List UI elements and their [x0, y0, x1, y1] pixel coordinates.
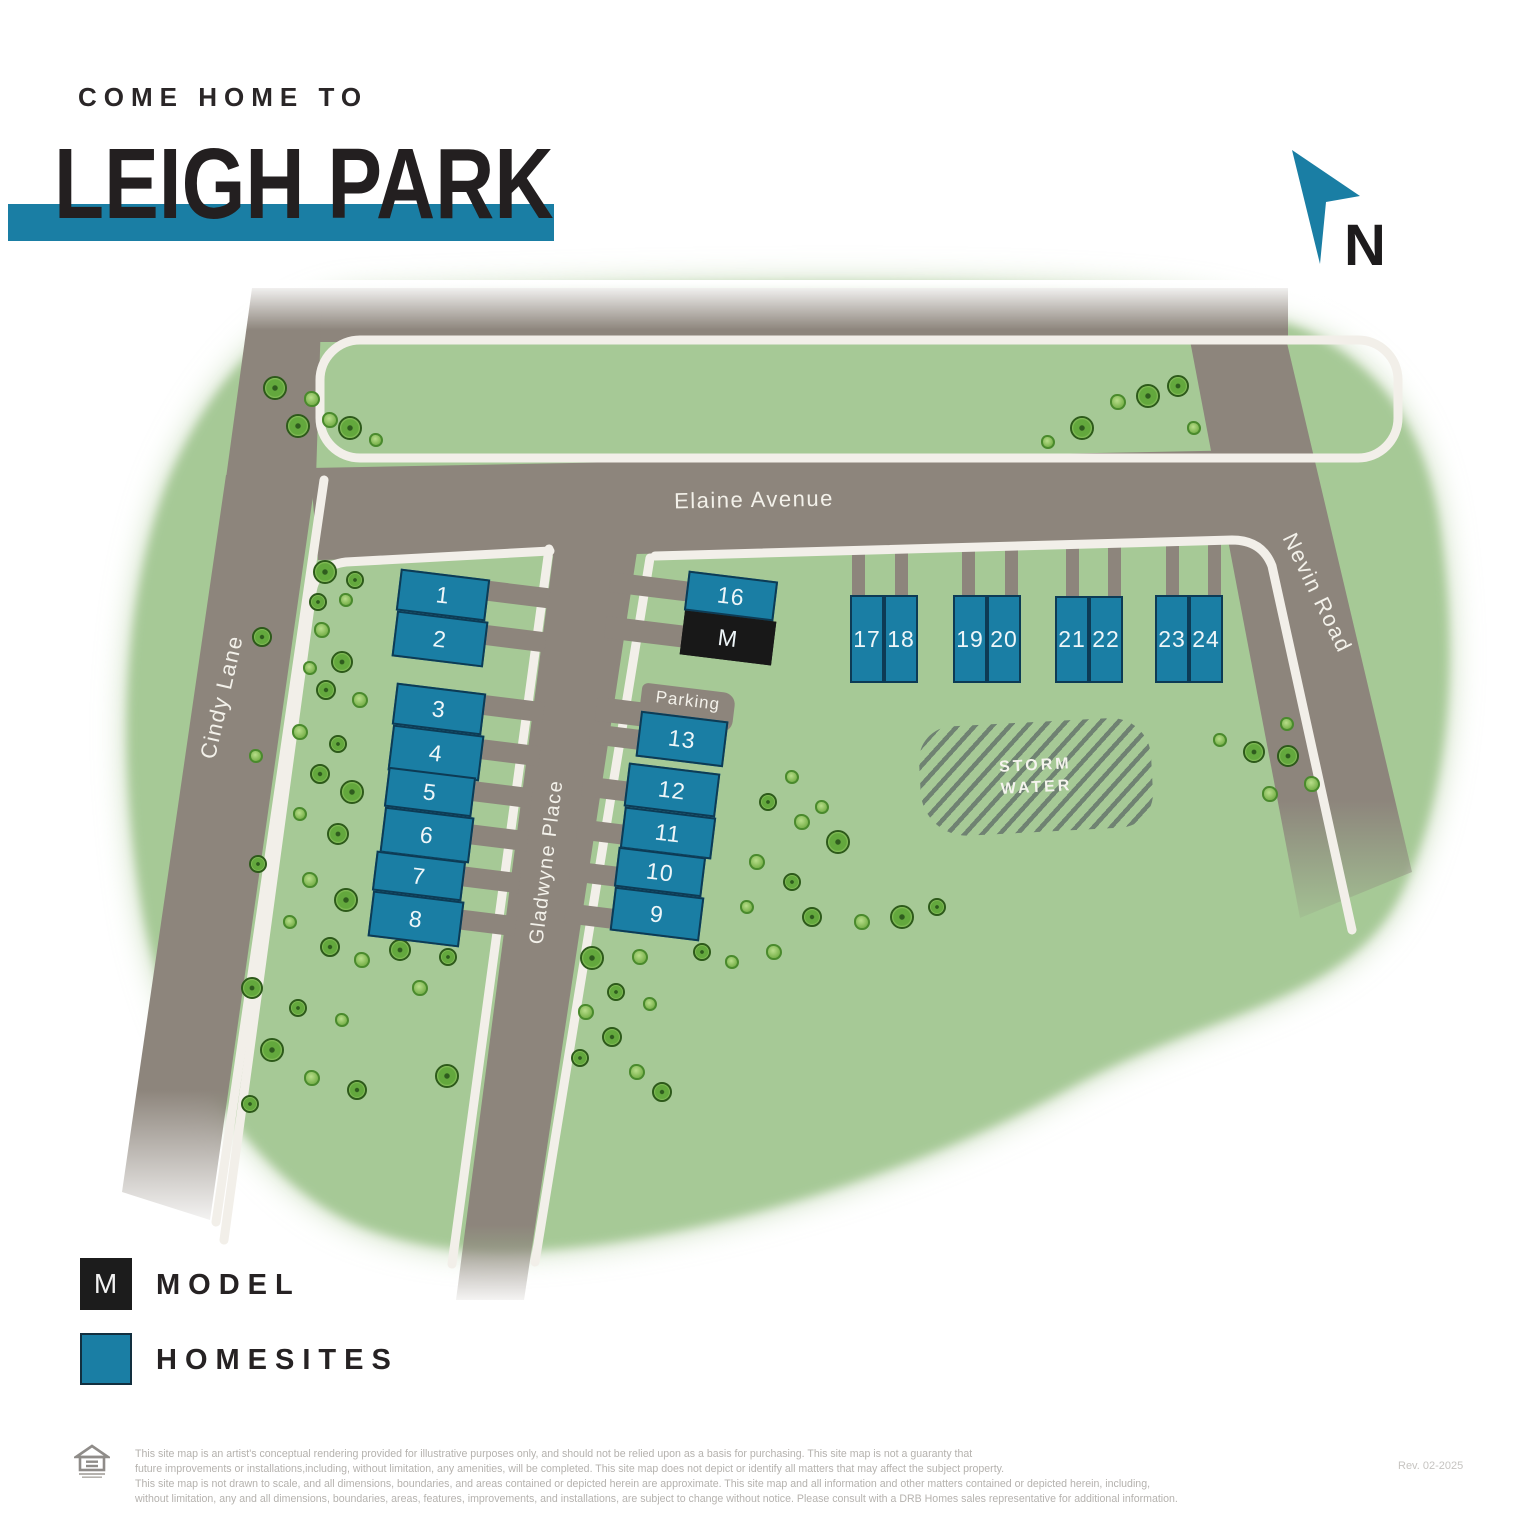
bush-icon [335, 1013, 349, 1027]
bush-icon [766, 944, 782, 960]
tree-icon [693, 943, 711, 961]
lot-number: 5 [422, 778, 439, 806]
bush-icon [1041, 435, 1055, 449]
parking-label: Parking [655, 687, 722, 715]
disclaimer-text: This site map is an artist's conceptual … [135, 1447, 1255, 1507]
homesite-lot: 24 [1189, 595, 1223, 683]
lot-number: 20 [990, 626, 1018, 653]
disclaimer-line: future improvements or installations,inc… [135, 1462, 1255, 1477]
lot-number: 2 [432, 625, 449, 653]
tree-icon [783, 873, 801, 891]
top-fade [0, 280, 1536, 332]
tree-icon [249, 855, 267, 873]
bush-icon [322, 412, 338, 428]
lot-number: 11 [653, 818, 682, 848]
tree-icon [602, 1027, 622, 1047]
lot-number: 3 [431, 695, 448, 723]
bush-icon [643, 997, 657, 1011]
tree-icon [435, 1064, 459, 1088]
model-legend-label: MODEL [156, 1269, 301, 1302]
bush-icon [302, 872, 318, 888]
tree-icon [890, 905, 914, 929]
tree-icon [389, 939, 411, 961]
lot-number: 16 [716, 581, 747, 611]
bush-icon [1304, 776, 1320, 792]
bush-icon [369, 433, 383, 447]
homesite-lot: 17 [850, 595, 884, 683]
homesite-lot: 23 [1155, 595, 1189, 683]
tree-icon [346, 571, 364, 589]
tree-icon [260, 1038, 284, 1062]
bush-icon [249, 749, 263, 763]
lot-number: 23 [1158, 626, 1186, 653]
model-legend-swatch: M [80, 1258, 132, 1310]
tree-icon [313, 560, 337, 584]
bush-icon [352, 692, 368, 708]
lot-number: 22 [1092, 626, 1120, 653]
bush-icon [578, 1004, 594, 1020]
tree-icon [802, 907, 822, 927]
tree-icon [571, 1049, 589, 1067]
storm-water-label: WATER [1000, 775, 1073, 800]
lot-number: M [716, 623, 739, 652]
bush-icon [304, 391, 320, 407]
equal-housing-icon [74, 1444, 110, 1485]
lot-number: 13 [667, 724, 698, 754]
lot-number: 9 [649, 900, 666, 928]
bush-icon [815, 800, 829, 814]
storm-water-basin: STORM WATER [917, 716, 1154, 838]
bush-icon [293, 807, 307, 821]
tree-icon [347, 1080, 367, 1100]
tree-icon [652, 1082, 672, 1102]
tree-icon [759, 793, 777, 811]
street-label: Elaine Avenue [674, 486, 834, 515]
tree-icon [826, 830, 850, 854]
bush-icon [794, 814, 810, 830]
bush-icon [629, 1064, 645, 1080]
tree-icon [580, 946, 604, 970]
bush-icon [1262, 786, 1278, 802]
tree-icon [320, 937, 340, 957]
lot-number: 18 [887, 626, 915, 653]
bush-icon [292, 724, 308, 740]
tree-icon [331, 651, 353, 673]
bush-icon [303, 661, 317, 675]
bush-icon [749, 854, 765, 870]
bush-icon [854, 914, 870, 930]
disclaimer-line: without limitation, any and all dimensio… [135, 1492, 1255, 1507]
bush-icon [740, 900, 754, 914]
homesite-lot: 22 [1089, 596, 1123, 683]
bush-icon [304, 1070, 320, 1086]
tree-icon [338, 416, 362, 440]
bush-icon [632, 949, 648, 965]
lot-number: 4 [428, 739, 445, 767]
homesite-lot: 19 [953, 595, 987, 683]
tree-icon [327, 823, 349, 845]
bush-icon [785, 770, 799, 784]
bush-icon [1187, 421, 1201, 435]
tree-icon [334, 888, 358, 912]
lot-number: 24 [1192, 626, 1220, 653]
bush-icon [314, 622, 330, 638]
driveway [1208, 512, 1221, 600]
disclaimer-line: This site map is an artist's conceptual … [135, 1447, 1255, 1462]
homesites-legend-swatch [80, 1333, 132, 1385]
tree-icon [340, 780, 364, 804]
lot-number: 6 [419, 821, 436, 849]
tree-icon [286, 414, 310, 438]
bush-icon [339, 593, 353, 607]
bush-icon [725, 955, 739, 969]
revision-label: Rev. 02-2025 [1398, 1460, 1463, 1472]
homesite-lot: 20 [987, 595, 1021, 683]
tree-icon [439, 948, 457, 966]
driveway [895, 512, 908, 600]
driveway [1066, 513, 1079, 600]
lot-number: 21 [1058, 626, 1086, 653]
lot-number: 12 [657, 775, 688, 805]
tree-icon [1070, 416, 1094, 440]
tree-icon [1136, 384, 1160, 408]
tree-icon [607, 983, 625, 1001]
model-legend-symbol: M [94, 1268, 118, 1300]
tree-icon [928, 898, 946, 916]
tree-icon [1167, 375, 1189, 397]
bush-icon [1110, 394, 1126, 410]
lot-number: 17 [853, 626, 881, 653]
homesite-lot: 18 [884, 595, 918, 683]
tree-icon [1277, 745, 1299, 767]
lot-number: 10 [645, 857, 676, 887]
page-title: LEIGH PARK [54, 134, 554, 234]
tree-icon [241, 977, 263, 999]
tree-icon [263, 376, 287, 400]
tree-icon [329, 735, 347, 753]
bush-icon [1280, 717, 1294, 731]
bush-icon [354, 952, 370, 968]
tree-icon [316, 680, 336, 700]
driveway [1166, 512, 1179, 600]
driveway [962, 512, 975, 600]
lot-number: 7 [411, 862, 428, 890]
tree-icon [309, 593, 327, 611]
lot-number: 19 [956, 626, 984, 653]
driveway [852, 512, 865, 600]
tree-icon [1243, 741, 1265, 763]
disclaimer-line: This site map is not drawn to scale, and… [135, 1477, 1255, 1492]
lot-number: 8 [408, 905, 425, 933]
tree-icon [310, 764, 330, 784]
driveway [1005, 512, 1018, 600]
driveway [1108, 513, 1121, 600]
tree-icon [289, 999, 307, 1017]
site-map-flyer: COME HOME TO LEIGH PARK N [0, 0, 1536, 1536]
homesite-lot: 21 [1055, 596, 1089, 683]
bush-icon [1213, 733, 1227, 747]
bush-icon [412, 980, 428, 996]
lot-number: 1 [435, 581, 452, 609]
tree-icon [241, 1095, 259, 1113]
tree-icon [252, 627, 272, 647]
homesites-legend-label: HOMESITES [156, 1344, 399, 1377]
bush-icon [283, 915, 297, 929]
